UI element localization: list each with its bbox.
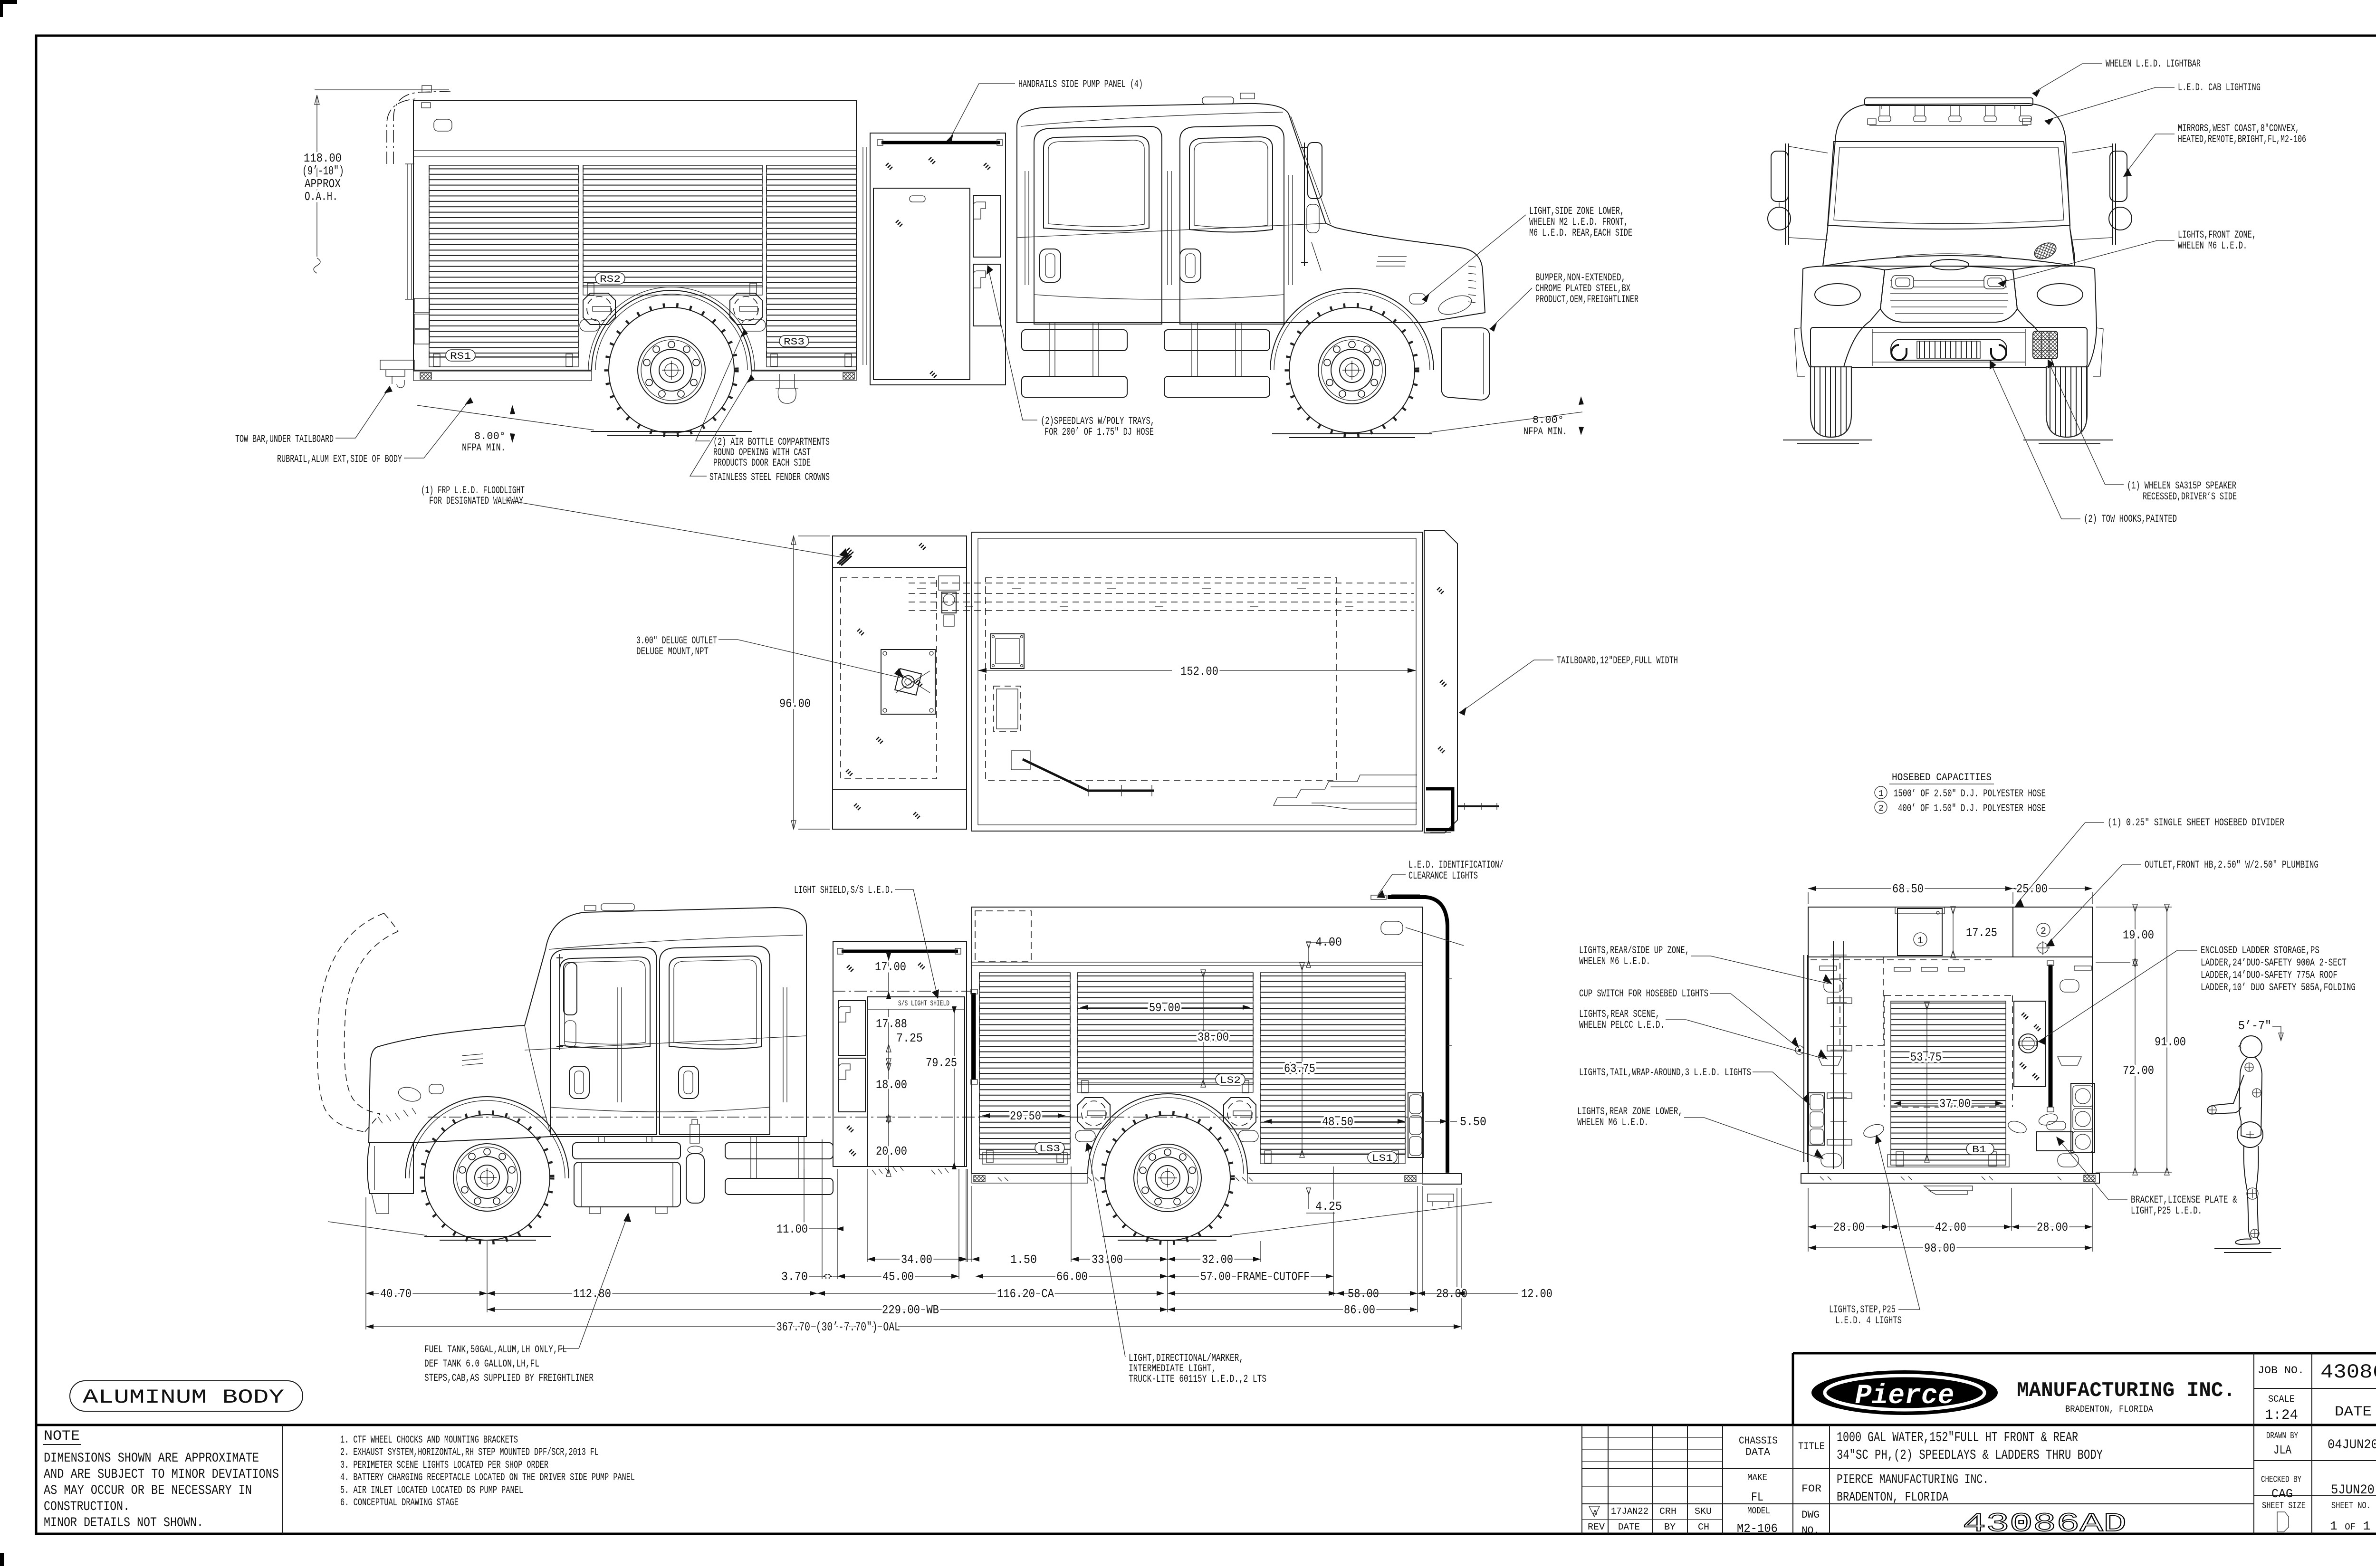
svg-text:TAILBOARD,12″DEEP,FULL WIDTH: TAILBOARD,12″DEEP,FULL WIDTH: [1557, 655, 1678, 667]
svg-text:S/S LIGHT SHIELD: S/S LIGHT SHIELD: [898, 999, 949, 1008]
svg-text:86.00: 86.00: [1344, 1303, 1375, 1317]
svg-text:20.00: 20.00: [876, 1144, 907, 1158]
svg-text:57.00 FRAME CUTOFF: 57.00 FRAME CUTOFF: [1200, 1270, 1310, 1284]
svg-text:32.00: 32.00: [1202, 1252, 1233, 1267]
svg-text:29.50: 29.50: [1010, 1109, 1041, 1123]
svg-text:LS1: LS1: [1372, 1153, 1393, 1164]
svg-text:LS3: LS3: [1039, 1144, 1060, 1155]
svg-text:40.70: 40.70: [380, 1287, 412, 1301]
svg-text:28.00: 28.00: [1833, 1220, 1865, 1234]
svg-text:DWG: DWG: [1801, 1509, 1820, 1521]
svg-text:2: 2: [1878, 804, 1884, 813]
svg-text:BRACKET,LICENSE PLATE &: BRACKET,LICENSE PLATE &: [2131, 1194, 2237, 1206]
svg-text:12.00: 12.00: [1521, 1287, 1552, 1301]
svg-text:5. AIR INLET LOCATED LOCATED D: 5. AIR INLET LOCATED LOCATED DS PUMP PAN…: [340, 1484, 523, 1496]
svg-text:BUMPER,NON-EXTENDED,: BUMPER,NON-EXTENDED,: [1535, 272, 1626, 284]
svg-text:53.75: 53.75: [1910, 1050, 1942, 1064]
svg-text:63.75: 63.75: [1284, 1061, 1315, 1076]
svg-text:RS3: RS3: [784, 337, 805, 348]
svg-text:43086: 43086: [2320, 1361, 2376, 1384]
svg-text:CHROME PLATED STEEL,BX: CHROME PLATED STEEL,BX: [1535, 283, 1630, 295]
svg-text:SHEET SIZE: SHEET SIZE: [2262, 1501, 2306, 1511]
svg-text:L.E.D. CAB LIGHTING: L.E.D. CAB LIGHTING: [2178, 82, 2261, 94]
svg-text:MODEL: MODEL: [1747, 1506, 1770, 1516]
svg-text:18.00: 18.00: [876, 1078, 907, 1092]
svg-text:DELUGE MOUNT,NPT: DELUGE MOUNT,NPT: [636, 646, 709, 658]
svg-text:DATA: DATA: [1745, 1446, 1771, 1458]
svg-text:FOR DESIGNATED WALKWAY: FOR DESIGNATED WALKWAY: [429, 495, 523, 507]
svg-text:HEATED,REMOTE,BRIGHT,FL,M2-106: HEATED,REMOTE,BRIGHT,FL,M2-106: [2178, 134, 2306, 145]
svg-text:NFPA MIN.: NFPA MIN.: [1523, 426, 1567, 438]
svg-text:PRODUCTS DOOR EACH SIDE: PRODUCTS DOOR EACH SIDE: [713, 457, 811, 469]
svg-text:3.00″ DELUGE OUTLET: 3.00″ DELUGE OUTLET: [636, 635, 717, 647]
svg-text:LADDER,14’DUO-SAFETY 775A ROOF: LADDER,14’DUO-SAFETY 775A ROOF: [2201, 969, 2338, 981]
svg-text:(1) WHELEN SA315P SPEAKER: (1) WHELEN SA315P SPEAKER: [2127, 480, 2236, 492]
svg-text:REV: REV: [1588, 1522, 1605, 1532]
svg-text:8.00°: 8.00°: [474, 430, 506, 442]
svg-text:WHELEN M6 L.E.D.: WHELEN M6 L.E.D.: [1577, 1117, 1648, 1128]
svg-text:17.88: 17.88: [876, 1017, 907, 1031]
svg-text:112.80: 112.80: [573, 1287, 611, 1301]
svg-text:PIERCE MANUFACTURING INC.: PIERCE MANUFACTURING INC.: [1837, 1473, 1989, 1487]
svg-text:M6 L.E.D. REAR,EACH SIDE: M6 L.E.D. REAR,EACH SIDE: [1529, 227, 1632, 239]
svg-text:58.00: 58.00: [1348, 1287, 1379, 1301]
svg-text:MIRRORS,WEST COAST,8″CONVEX,: MIRRORS,WEST COAST,8″CONVEX,: [2178, 123, 2299, 134]
svg-text:(2)SPEEDLAYS W/POLY TRAYS,: (2)SPEEDLAYS W/POLY TRAYS,: [1041, 415, 1155, 427]
svg-text:CH: CH: [1698, 1522, 1709, 1532]
svg-text:WHELEN M6 L.E.D.: WHELEN M6 L.E.D.: [1579, 956, 1650, 967]
svg-text:1000 GAL WATER,152″FULL HT FRO: 1000 GAL WATER,152″FULL HT FRONT & REAR: [1837, 1430, 2078, 1445]
svg-text:Pierce: Pierce: [1855, 1381, 1954, 1412]
svg-text:B1: B1: [1972, 1145, 1986, 1156]
svg-text:A: A: [1593, 1509, 1597, 1517]
svg-text:RS2: RS2: [600, 274, 621, 285]
svg-text:5’-7″: 5’-7″: [2238, 1019, 2271, 1033]
svg-text:LIGHT SHIELD,S/S L.E.D.: LIGHT SHIELD,S/S L.E.D.: [794, 884, 894, 896]
svg-text:LIGHTS,REAR/SIDE UP ZONE,: LIGHTS,REAR/SIDE UP ZONE,: [1579, 945, 1689, 956]
svg-text:ALUMINUM BODY: ALUMINUM BODY: [83, 1386, 284, 1409]
svg-text:CUP SWITCH FOR HOSEBED LIGHTS: CUP SWITCH FOR HOSEBED LIGHTS: [1579, 988, 1708, 1000]
svg-text:TOW BAR,UNDER TAILBOARD: TOW BAR,UNDER TAILBOARD: [235, 433, 334, 445]
svg-text:BRADENTON, FLORIDA: BRADENTON, FLORIDA: [2065, 1404, 2154, 1415]
svg-text:CRH: CRH: [1659, 1506, 1677, 1517]
svg-text:HANDRAILS SIDE PUMP PANEL (4): HANDRAILS SIDE PUMP PANEL (4): [1018, 78, 1143, 90]
svg-text:JLA: JLA: [2273, 1443, 2291, 1457]
svg-text:116.20 CA: 116.20 CA: [997, 1287, 1054, 1301]
svg-text:(9’-10″): (9’-10″): [302, 164, 344, 178]
svg-text:AS MAY OCCUR OR BE NECESSARY I: AS MAY OCCUR OR BE NECESSARY IN: [44, 1483, 252, 1498]
svg-text:L.E.D. IDENTIFICATION/: L.E.D. IDENTIFICATION/: [1408, 859, 1504, 871]
svg-text:7.25: 7.25: [896, 1031, 923, 1045]
svg-text:PRODUCT,OEM,FREIGHTLINER: PRODUCT,OEM,FREIGHTLINER: [1535, 294, 1638, 306]
svg-text:FL: FL: [1751, 1490, 1763, 1504]
svg-text:229.00 WB: 229.00 WB: [882, 1303, 939, 1317]
svg-text:WHELEN M2 L.E.D. FRONT,: WHELEN M2 L.E.D. FRONT,: [1529, 216, 1628, 228]
svg-text:RUBRAIL,ALUM EXT,SIDE OF BODY: RUBRAIL,ALUM EXT,SIDE OF BODY: [277, 453, 402, 465]
svg-text:68.50: 68.50: [1892, 882, 1924, 896]
svg-text:5JUN20: 5JUN20: [2331, 1483, 2375, 1498]
svg-text:25.00: 25.00: [2016, 882, 2048, 896]
svg-text:4.00: 4.00: [1315, 935, 1342, 949]
svg-text:BRADENTON, FLORIDA: BRADENTON, FLORIDA: [1837, 1491, 1949, 1505]
svg-text:66.00: 66.00: [1056, 1270, 1088, 1284]
svg-text:BY: BY: [1664, 1522, 1676, 1532]
svg-text:34″SC PH,(2) SPEEDLAYS & LADDE: 34″SC PH,(2) SPEEDLAYS & LADDERS THRU BO…: [1837, 1447, 2103, 1463]
svg-text:LIGHTS,REAR SCENE,: LIGHTS,REAR SCENE,: [1579, 1008, 1660, 1020]
svg-text:RS1: RS1: [450, 351, 471, 362]
svg-text:DATE: DATE: [2335, 1404, 2372, 1420]
svg-text:3.70: 3.70: [781, 1270, 808, 1284]
svg-text:8.00°: 8.00°: [1533, 414, 1564, 426]
svg-text:45.00: 45.00: [882, 1270, 914, 1284]
svg-text:CAG: CAG: [2271, 1487, 2293, 1501]
svg-text:118.00: 118.00: [304, 151, 342, 165]
svg-text:AND ARE SUBJECT TO MINOR DEVIA: AND ARE SUBJECT TO MINOR DEVIATIONS: [44, 1467, 279, 1482]
svg-text:STEPS,CAB,AS SUPPLIED BY FREIG: STEPS,CAB,AS SUPPLIED BY FREIGHTLINER: [424, 1372, 594, 1384]
svg-text:CLEARANCE LIGHTS: CLEARANCE LIGHTS: [1408, 870, 1478, 882]
svg-text:(2) TOW HOOKS,PAINTED: (2) TOW HOOKS,PAINTED: [2084, 513, 2177, 525]
svg-text:6. CONCEPTUAL DRAWING STAGE: 6. CONCEPTUAL DRAWING STAGE: [340, 1497, 459, 1509]
svg-text:37.00: 37.00: [1939, 1097, 1971, 1111]
svg-text:SCALE: SCALE: [2268, 1394, 2295, 1405]
svg-text:DIMENSIONS SHOWN ARE APPROXIMA: DIMENSIONS SHOWN ARE APPROXIMATE: [44, 1451, 259, 1466]
svg-text:MAKE: MAKE: [1747, 1472, 1767, 1483]
svg-text:LIGHT,SIDE ZONE LOWER,: LIGHT,SIDE ZONE LOWER,: [1529, 205, 1624, 217]
svg-text:79.25: 79.25: [926, 1056, 957, 1070]
svg-text:1: 1: [1917, 936, 1923, 947]
svg-text:LADDER,10’ DUO SAFETY 585A,FOL: LADDER,10’ DUO SAFETY 585A,FOLDING: [2201, 982, 2356, 994]
svg-text:OUTLET,FRONT HB,2.50″ W/2.50″: OUTLET,FRONT HB,2.50″ W/2.50″ PLUMBING: [2145, 859, 2319, 871]
svg-text:17JAN22: 17JAN22: [1611, 1506, 1648, 1517]
svg-text:WHELEN PELCC L.E.D.: WHELEN PELCC L.E.D.: [1579, 1019, 1665, 1031]
svg-text:FUEL TANK,50GAL,ALUM,LH ONLY,F: FUEL TANK,50GAL,ALUM,LH ONLY,FL: [424, 1344, 567, 1356]
svg-text:1:24: 1:24: [2265, 1407, 2298, 1424]
svg-text:152.00: 152.00: [1180, 664, 1218, 679]
svg-text:MANUFACTURING INC.: MANUFACTURING INC.: [2017, 1379, 2235, 1403]
svg-text:2: 2: [2041, 926, 2046, 937]
svg-text:43086AD: 43086AD: [1963, 1509, 2127, 1539]
svg-text:LIGHTS,FRONT ZONE,: LIGHTS,FRONT ZONE,: [2178, 229, 2256, 241]
svg-text:(1) 0.25″ SINGLE SHEET HOSEBED: (1) 0.25″ SINGLE SHEET HOSEBED DIVIDER: [2108, 817, 2284, 829]
svg-text:CHECKED BY: CHECKED BY: [2261, 1474, 2301, 1485]
svg-text:L.E.D. 4 LIGHTS: L.E.D. 4 LIGHTS: [1835, 1315, 1902, 1327]
svg-text:DRAWN BY: DRAWN BY: [2266, 1431, 2298, 1441]
svg-text:1: 1: [1878, 789, 1884, 799]
svg-text:SKU: SKU: [1695, 1506, 1712, 1517]
svg-text:LS2: LS2: [1220, 1075, 1241, 1086]
svg-text:M2-106: M2-106: [1737, 1521, 1778, 1536]
svg-text:1.50: 1.50: [1010, 1252, 1037, 1267]
svg-text:48.50: 48.50: [1322, 1115, 1353, 1129]
svg-text:11.00: 11.00: [776, 1222, 808, 1236]
svg-text:1. CTF WHEEL CHOCKS AND MOUNTI: 1. CTF WHEEL CHOCKS AND MOUNTING BRACKET…: [340, 1434, 518, 1446]
svg-text:SHEET NO.: SHEET NO.: [2331, 1501, 2371, 1511]
svg-text:38.00: 38.00: [1198, 1030, 1229, 1044]
svg-text:NFPA MIN.: NFPA MIN.: [462, 442, 506, 454]
svg-text:4.25: 4.25: [1315, 1199, 1342, 1214]
svg-text:WHELEN M6 L.E.D.: WHELEN M6 L.E.D.: [2178, 240, 2247, 252]
svg-text:5.50: 5.50: [1460, 1115, 1486, 1129]
svg-text:DATE: DATE: [1618, 1522, 1640, 1532]
svg-text:FOR: FOR: [1801, 1483, 1821, 1495]
svg-text:HOSEBED CAPACITIES: HOSEBED CAPACITIES: [1892, 772, 1992, 784]
svg-text:98.00: 98.00: [1924, 1241, 1955, 1255]
svg-text:1500’ OF 2.50″ D.J. POLYESTER: 1500’ OF 2.50″ D.J. POLYESTER HOSE: [1894, 788, 2046, 800]
svg-text:STAINLESS STEEL FENDER CROWNS: STAINLESS STEEL FENDER CROWNS: [709, 471, 830, 483]
svg-text:04JUN20: 04JUN20: [2328, 1438, 2376, 1453]
svg-text:RECESSED,DRIVER’S SIDE: RECESSED,DRIVER’S SIDE: [2143, 491, 2237, 503]
svg-text:MINOR DETAILS NOT SHOWN.: MINOR DETAILS NOT SHOWN.: [44, 1516, 203, 1530]
svg-text:59.00: 59.00: [1149, 1001, 1180, 1015]
svg-text:400’ OF 1.50″ D.J. POLYESTER H: 400’ OF 1.50″ D.J. POLYESTER HOSE: [1898, 803, 2046, 814]
svg-text:CHASSIS: CHASSIS: [1739, 1435, 1778, 1447]
svg-text:17.25: 17.25: [1966, 926, 1997, 940]
svg-text:4. BATTERY CHARGING RECEPTACLE: 4. BATTERY CHARGING RECEPTACLE LOCATED O…: [340, 1472, 635, 1483]
svg-text:JOB NO.: JOB NO.: [2258, 1365, 2304, 1377]
svg-text:DEF TANK 6.0 GALLON,LH,FL: DEF TANK 6.0 GALLON,LH,FL: [424, 1358, 539, 1370]
svg-text:NO.: NO.: [1801, 1525, 1820, 1537]
svg-text:LADDER,24’DUO-SAFETY 900A 2-SE: LADDER,24’DUO-SAFETY 900A 2-SECT: [2201, 957, 2347, 969]
svg-text:19.00: 19.00: [2123, 928, 2154, 942]
svg-text:LIGHTS,REAR ZONE LOWER,: LIGHTS,REAR ZONE LOWER,: [1577, 1106, 1683, 1118]
svg-text:LIGHTS,STEP,P25: LIGHTS,STEP,P25: [1829, 1304, 1896, 1316]
svg-text:NOTE: NOTE: [44, 1428, 80, 1444]
svg-text:2. EXHAUST SYSTEM,HORIZONTAL,R: 2. EXHAUST SYSTEM,HORIZONTAL,RH STEP MOU…: [340, 1446, 599, 1458]
svg-text:TRUCK-LITE 60115Y L.E.D.,2 LTS: TRUCK-LITE 60115Y L.E.D.,2 LTS: [1129, 1373, 1266, 1385]
svg-text:ENCLOSED LADDER STORAGE,PS: ENCLOSED LADDER STORAGE,PS: [2201, 945, 2319, 956]
svg-text:72.00: 72.00: [2123, 1063, 2154, 1078]
svg-text:3. PERIMETER SCENE LIGHTS LOCA: 3. PERIMETER SCENE LIGHTS LOCATED PER SH…: [340, 1459, 548, 1471]
svg-text:WHELEN L.E.D. LIGHTBAR: WHELEN L.E.D. LIGHTBAR: [2106, 58, 2201, 70]
svg-text:17.00: 17.00: [875, 960, 906, 974]
svg-text:O.A.H.: O.A.H.: [305, 190, 338, 204]
svg-text:CONSTRUCTION.: CONSTRUCTION.: [44, 1500, 130, 1514]
svg-text:367.70 (30’-7.70″) OAL: 367.70 (30’-7.70″) OAL: [776, 1320, 900, 1334]
svg-text:FOR 200’ OF 1.75″ DJ HOSE: FOR 200’ OF 1.75″ DJ HOSE: [1044, 426, 1154, 438]
svg-text:28.00: 28.00: [2037, 1220, 2068, 1234]
svg-text:96.00: 96.00: [779, 697, 811, 711]
svg-text:42.00: 42.00: [1935, 1220, 1966, 1234]
svg-text:TITLE: TITLE: [1798, 1441, 1825, 1453]
svg-text:LIGHT,P25 L.E.D.: LIGHT,P25 L.E.D.: [2131, 1205, 2202, 1217]
svg-text:APPROX: APPROX: [305, 177, 341, 191]
svg-text:LIGHTS,TAIL,WRAP-AROUND,3 L.E.: LIGHTS,TAIL,WRAP-AROUND,3 L.E.D. LIGHTS: [1579, 1067, 1751, 1079]
svg-text:91.00: 91.00: [2155, 1035, 2186, 1049]
svg-text:34.00: 34.00: [901, 1252, 932, 1267]
